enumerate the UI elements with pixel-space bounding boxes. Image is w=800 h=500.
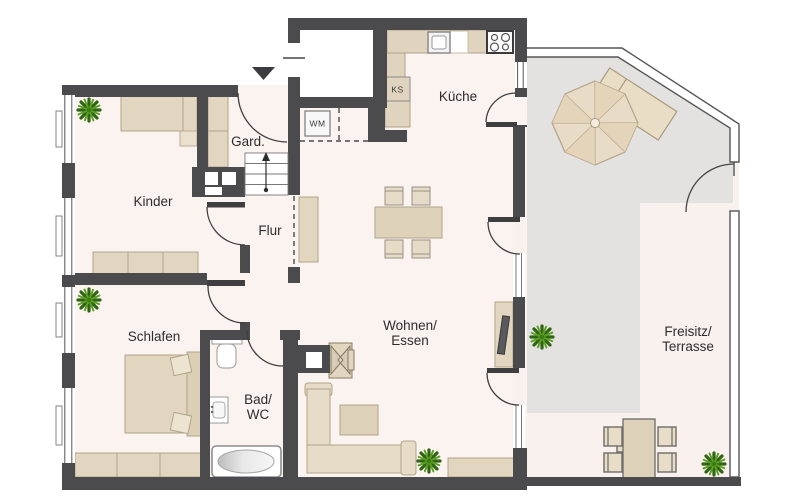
kitchen-door-opening [515, 97, 527, 125]
window [56, 198, 75, 275]
terrace-chair [604, 427, 622, 446]
fridge-label: KS [391, 85, 403, 95]
terrace-door-opening [513, 217, 525, 253]
room-label-wohnen: Wohnen/ [383, 318, 437, 333]
terrace-table [623, 419, 655, 478]
room-label-kinder: Kinder [133, 194, 173, 209]
dining-chair [385, 187, 403, 205]
staircase [245, 152, 288, 195]
room-label-terrasse: Terrasse [662, 339, 714, 354]
kitchen-sink-basin [432, 36, 446, 49]
floor-plan-image: WM KS Kinder Schlafen Gard. Flur Küche W… [0, 0, 800, 500]
window [56, 95, 75, 163]
shaft-opening [306, 352, 322, 368]
hall-sideboard [299, 197, 318, 262]
entrance-arrow-icon [252, 67, 275, 80]
dining-chair [412, 187, 430, 205]
pillow [170, 354, 191, 375]
sofa-armrest [401, 441, 416, 475]
shaft-opening [205, 187, 222, 195]
shaft-opening [205, 172, 218, 185]
kinder-sofa [93, 252, 198, 276]
bedroom-sideboard [75, 453, 203, 477]
wardrobe-cabinet [208, 93, 228, 167]
dining-chair [385, 240, 403, 258]
terrace-door-opening [513, 368, 525, 405]
schlafen-door-leaf [207, 280, 245, 286]
room-label-garderobe: Gard. [231, 134, 265, 149]
window [515, 62, 527, 88]
terrace-chair [658, 427, 676, 446]
glass-door-panel [513, 253, 525, 297]
faucet-dot [211, 411, 213, 413]
pillow [170, 412, 191, 433]
room-label-flur: Flur [258, 223, 282, 238]
glass-door-panel [513, 405, 525, 448]
kinder-door-leaf [207, 202, 245, 208]
flur-furniture [299, 197, 318, 262]
dining-table [375, 207, 442, 238]
shaft-opening [222, 172, 236, 185]
terrace-door-leaf [487, 368, 519, 373]
terrace-chair [604, 453, 622, 472]
living-sideboard [448, 458, 515, 477]
kitchen-door-leaf [486, 122, 517, 127]
window [56, 287, 75, 353]
kitchen-drainer [450, 31, 468, 53]
kinder-nightstand [180, 131, 197, 146]
room-label-bad: Bad/ [244, 392, 272, 407]
coffee-table [340, 405, 378, 435]
floor-plan-canvas: WM KS Kinder Schlafen Gard. Flur Küche W… [0, 0, 800, 500]
room-label-essen: Essen [391, 333, 429, 348]
parasol-icon [552, 81, 638, 165]
kitchen-counter-left [385, 101, 410, 127]
cabinet-knob [348, 350, 354, 370]
room-label-wc: WC [247, 407, 270, 422]
room-label-kueche: Küche [439, 89, 477, 104]
vestibule-floor [298, 28, 375, 100]
terrace-door-leaf [488, 217, 520, 222]
room-label-schlafen: Schlafen [128, 329, 181, 344]
toilet-bowl [217, 344, 236, 368]
terrace-chair [658, 453, 676, 472]
kitchen-counter-left [385, 53, 405, 77]
kinder-bed [121, 95, 197, 131]
washing-machine-label: WM [309, 119, 325, 129]
garderobe-furniture [208, 93, 228, 167]
window [56, 388, 75, 463]
dining-chair [412, 240, 430, 258]
corner-sofa [307, 445, 415, 473]
bathtub-basin [218, 450, 274, 473]
room-label-freisitz: Freisitz/ [664, 324, 711, 339]
terrace-parapet-right [730, 211, 739, 477]
faucet-dot [211, 406, 213, 408]
bath-sink-basin [213, 402, 225, 418]
